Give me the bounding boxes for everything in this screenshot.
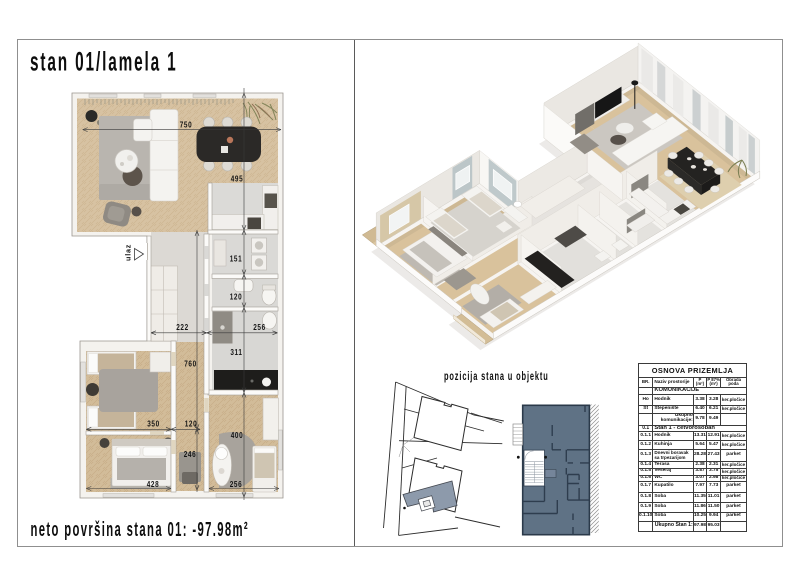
svg-text:246: 246	[184, 449, 197, 459]
svg-text:256: 256	[230, 479, 243, 489]
svg-text:151: 151	[230, 254, 243, 264]
svg-text:350: 350	[147, 419, 160, 429]
svg-text:760: 760	[184, 359, 197, 369]
svg-text:256: 256	[253, 322, 266, 332]
svg-text:neto površina stana 01: -97.98: neto površina stana 01: -97.98m²	[31, 519, 250, 541]
svg-text:120: 120	[230, 292, 243, 302]
svg-text:495: 495	[231, 174, 244, 184]
svg-text:311: 311	[230, 347, 242, 357]
svg-text:400: 400	[231, 430, 244, 440]
svg-text:750: 750	[180, 120, 193, 130]
svg-text:pozicija stana u objektu: pozicija stana u objektu	[444, 370, 549, 383]
svg-text:stan 01/lamela 1: stan 01/lamela 1	[30, 46, 178, 77]
svg-text:428: 428	[147, 479, 160, 489]
svg-text:222: 222	[176, 322, 189, 332]
svg-text:120: 120	[185, 419, 198, 429]
svg-text:ulaz: ulaz	[124, 244, 133, 261]
